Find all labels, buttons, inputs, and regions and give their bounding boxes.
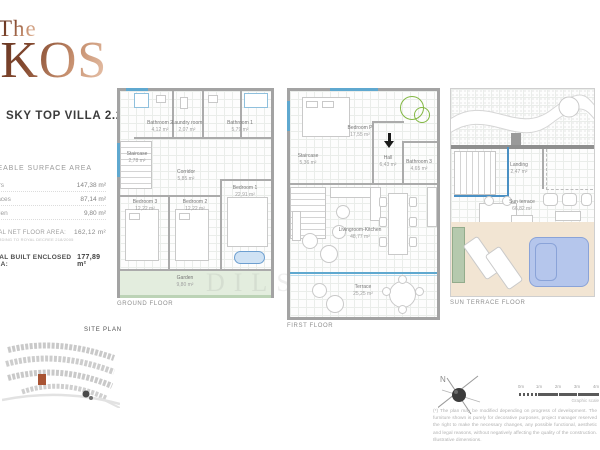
room-name: Bathroom 1 xyxy=(224,120,256,127)
highlighted-unit xyxy=(38,374,46,385)
ground-floor-caption: GROUND FLOOR xyxy=(117,301,173,307)
toilet xyxy=(180,97,188,109)
first-floor-plan: Bedroom P 17,55 m² Staircase 5,36 m² Hal… xyxy=(287,88,440,320)
site-plan-map xyxy=(2,336,120,408)
room-label: Staircase 5,36 m² xyxy=(290,153,326,166)
area-row-label: Floors xyxy=(0,182,4,189)
room-name: Bathroom 3 xyxy=(402,159,436,166)
window-segment xyxy=(287,101,290,131)
pillow xyxy=(306,101,318,108)
surface-area-section-title: USEABLE SURFACE AREA xyxy=(0,165,106,172)
tv-unit xyxy=(292,211,301,241)
area-row-value: 9,80 m² xyxy=(84,210,106,217)
page-title: SKY TOP VILLA 2.2 xyxy=(6,110,123,122)
wall xyxy=(372,121,404,123)
wall xyxy=(168,195,170,269)
scale-tick: 3m xyxy=(574,384,580,389)
window-segment xyxy=(126,88,148,91)
watermark: DILS xyxy=(206,268,300,298)
room-area: 5,36 m² xyxy=(290,160,326,167)
scale-tick: 4m xyxy=(593,384,599,389)
room-label: Laundry room 2,07 m² xyxy=(171,120,203,133)
room-area: 9,80 m² xyxy=(167,282,203,289)
chimney xyxy=(511,133,521,145)
room-label: Staircase 2,78 m² xyxy=(121,151,153,164)
scale-bar-solid-segment xyxy=(538,393,599,396)
bathtub xyxy=(234,251,265,264)
room-area: 5,79 m² xyxy=(224,127,256,134)
total-built-value: 177,89 m² xyxy=(77,254,106,268)
room-label: Sun terrace 66,82 m² xyxy=(500,199,544,212)
room-label: Hall 6,43 m² xyxy=(374,155,402,168)
wall xyxy=(220,179,222,269)
site-plan-title: SITE PLAN xyxy=(84,327,122,333)
planter xyxy=(452,227,465,283)
total-built-enclosed-area: TOTAL BUILT ENCLOSED AREA: 177,89 m² xyxy=(0,254,106,268)
room-label: Corridor 5,85 m² xyxy=(168,169,204,182)
stair-railing xyxy=(454,195,509,197)
room-area: 25,25 m² xyxy=(343,291,383,298)
area-row-floors: Floors 147,38 m² xyxy=(0,178,106,192)
area-row-terraces: Terraces 87,14 m² xyxy=(0,192,106,206)
dining-table xyxy=(388,193,408,255)
fridge-unit xyxy=(427,187,437,227)
room-area: 2,07 m² xyxy=(171,127,203,134)
ground-floor-plan: Bathroom 2 4,12 m² Laundry room 2,07 m² … xyxy=(117,88,274,298)
chair xyxy=(415,287,424,296)
total-net-label: TOTAL NET FLOOR AREA: xyxy=(0,230,66,236)
window-segment xyxy=(330,88,378,91)
coffee-table xyxy=(555,211,581,221)
sofa-seat xyxy=(562,193,577,206)
brochure-page: The IKOS SKY TOP VILLA 2.2 USEABLE SURFA… xyxy=(0,0,600,450)
chair xyxy=(409,237,417,247)
logo-ikos: IKOS xyxy=(0,31,107,90)
armchair xyxy=(320,245,338,263)
room-name: Bedroom 2 xyxy=(178,199,212,206)
chair xyxy=(484,196,494,206)
graphic-scale-label: Graphic scale xyxy=(571,398,599,403)
room-label: Bathroom 1 5,79 m² xyxy=(224,120,256,133)
scale-bar: 0m 1m 2m 3m 4m Graphic scale xyxy=(519,384,599,404)
disclaimer-text: (*) The plan may be modified depending o… xyxy=(433,408,597,444)
room-area: 2,78 m² xyxy=(121,158,153,165)
pillow xyxy=(322,101,334,108)
chair xyxy=(382,287,391,296)
scale-tick: 1m xyxy=(536,384,542,389)
sun-terrace-floor-caption: SUN TERRACE FLOOR xyxy=(450,300,525,306)
scale-tick: 0m xyxy=(518,384,524,389)
sun-terrace-floor-plan: Landing 2,47 m² Sun terrace 66,82 m² xyxy=(450,88,595,297)
room-name: Bedroom 3 xyxy=(128,199,162,206)
chair xyxy=(409,217,417,227)
chair xyxy=(398,275,407,284)
room-name: Laundry room xyxy=(171,120,203,127)
garden-path xyxy=(451,89,594,145)
north-label: N xyxy=(440,375,446,384)
room-area: 2,47 m² xyxy=(501,169,537,176)
outdoor-table xyxy=(389,281,416,308)
area-row-garden: Garden 9,80 m² xyxy=(0,206,106,220)
area-row-label: Terraces xyxy=(0,196,11,203)
room-label: Livingroom-Kitchen 48,77 m² xyxy=(328,227,392,240)
room-area: 66,82 m² xyxy=(500,206,544,213)
sink xyxy=(156,95,166,103)
room-label: Bathroom 3 4,65 m² xyxy=(402,159,436,172)
room-label: Garden 9,80 m² xyxy=(167,275,203,288)
bed xyxy=(227,197,268,247)
first-floor-caption: FIRST FLOOR xyxy=(287,323,333,329)
shower xyxy=(244,93,268,108)
shower xyxy=(134,93,149,108)
scale-tick: 2m xyxy=(555,384,561,389)
room-label: Bedroom 1 22,91 m² xyxy=(225,185,265,198)
sofa-seat xyxy=(543,193,558,206)
total-net-floor-area: TOTAL NET FLOOR AREA: 162,12 m² xyxy=(0,229,106,236)
sofa-seat xyxy=(581,193,592,206)
staircase-steps xyxy=(120,141,152,189)
plant-pot xyxy=(326,295,344,313)
plant-icon xyxy=(414,107,430,123)
glass-door xyxy=(290,275,437,276)
chair xyxy=(379,217,387,227)
wall xyxy=(120,195,220,197)
area-row-value: 147,38 m² xyxy=(77,182,106,189)
area-row-value: 87,14 m² xyxy=(80,196,106,203)
armchair xyxy=(302,233,318,249)
stool xyxy=(336,205,350,219)
area-row-label: Garden xyxy=(0,210,8,217)
room-area: 4,65 m² xyxy=(402,166,436,173)
room-area: 22,91 m² xyxy=(225,192,265,199)
pergola-zone xyxy=(546,149,593,190)
chair xyxy=(398,305,407,314)
room-area: 5,85 m² xyxy=(168,176,204,183)
entrance-arrow-icon xyxy=(388,133,391,141)
wall xyxy=(220,179,271,181)
staircase-steps xyxy=(454,151,496,195)
scale-bar-gap xyxy=(577,393,578,396)
wall xyxy=(290,183,437,185)
room-area: 12,22 m² xyxy=(178,206,212,213)
pillow xyxy=(129,213,140,220)
daybed-cushion xyxy=(535,243,557,281)
plant-pot xyxy=(312,283,327,298)
glass-door xyxy=(290,272,437,274)
entrance-arrow-icon xyxy=(384,141,394,148)
room-label: Bedroom P 17,55 m² xyxy=(340,125,380,138)
room-label: Bedroom 3 12,22 m² xyxy=(128,199,162,212)
total-net-note: ACCORDING TO ROYAL DECREE 218/2005 xyxy=(0,237,106,242)
scale-bar-dashed-segment xyxy=(519,393,538,396)
total-net-value: 162,12 m² xyxy=(74,229,106,236)
chair xyxy=(409,197,417,207)
room-area: 12,22 m² xyxy=(128,206,162,213)
pillow xyxy=(179,213,190,220)
chair xyxy=(379,197,387,207)
surface-area-panel: USEABLE SURFACE AREA Floors 147,38 m² Te… xyxy=(0,165,106,268)
total-built-label: TOTAL BUILT ENCLOSED AREA: xyxy=(0,254,77,268)
room-label: Landing 2,47 m² xyxy=(501,162,537,175)
room-label: Terrace 25,25 m² xyxy=(343,284,383,297)
wall xyxy=(134,137,271,139)
wall xyxy=(402,141,437,143)
room-area: 17,55 m² xyxy=(340,132,380,139)
scale-bar-gap xyxy=(558,393,559,396)
room-area: 48,77 m² xyxy=(328,234,392,241)
wall xyxy=(542,149,544,189)
washer xyxy=(208,95,218,103)
room-label: Bedroom 2 12,22 m² xyxy=(178,199,212,212)
room-area: 6,43 m² xyxy=(374,162,402,169)
